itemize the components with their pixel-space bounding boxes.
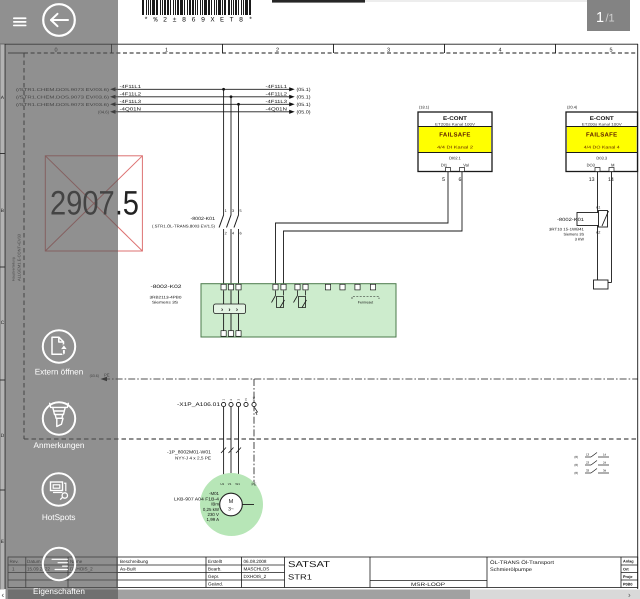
svg-text:As-Built: As-Built — [120, 567, 137, 572]
svg-text:N: N — [244, 398, 248, 400]
svg-text:14: 14 — [608, 177, 614, 183]
svg-text:›: › — [228, 307, 230, 314]
svg-text:Bearb.: Bearb. — [208, 567, 222, 572]
svg-text:IBm: IBm — [211, 502, 219, 507]
svg-text:PE: PE — [252, 483, 258, 487]
svg-text:06.08.2008: 06.08.2008 — [244, 559, 267, 564]
svg-text:FAILSAFE: FAILSAFE — [439, 132, 470, 139]
svg-text:5: 5 — [442, 177, 445, 183]
svg-text:›: › — [221, 307, 223, 314]
svg-text:2: 2 — [225, 232, 227, 236]
svg-text:(.STR1.ÖL-TRANS.8003 EV/1.5): (.STR1.ÖL-TRANS.8003 EV/1.5) — [152, 224, 216, 229]
svg-text:4: 4 — [498, 48, 501, 54]
svg-text:FAILSAFE: FAILSAFE — [586, 132, 617, 139]
svg-text:-X1P_A106.01: -X1P_A106.01 — [177, 402, 220, 408]
svg-text:*: * — [249, 16, 253, 24]
svg-text:8: 8 — [239, 16, 243, 24]
svg-text:(05.1): (05.1) — [297, 87, 312, 92]
svg-text:PE: PE — [252, 396, 256, 400]
svg-text:M: M — [229, 499, 234, 505]
svg-text:C: C — [1, 320, 5, 326]
svg-text:-4F11L2: -4F11L2 — [120, 92, 142, 97]
svg-text:Anmerkungen: Anmerkungen — [34, 441, 85, 450]
svg-text:3RT10 15-1WB41: 3RT10 15-1WB41 — [549, 228, 584, 232]
svg-text:Proje: Proje — [623, 575, 633, 579]
svg-text:P0B0: P0B0 — [623, 583, 633, 587]
svg-text:24: 24 — [603, 461, 607, 465]
svg-text:23: 23 — [586, 461, 590, 465]
svg-text:(8): (8) — [574, 455, 578, 459]
svg-text:E-CONT: E-CONT — [590, 116, 615, 122]
svg-text:±: ± — [173, 16, 177, 24]
svg-text:(05.1): (05.1) — [297, 102, 312, 107]
svg-text:NYY-J 4 x 2,5 PE: NYY-J 4 x 2,5 PE — [175, 456, 211, 461]
svg-text:6: 6 — [240, 232, 242, 236]
svg-text:*: * — [144, 16, 148, 24]
svg-text:9: 9 — [201, 16, 205, 24]
svg-text:D03.3: D03.3 — [596, 156, 607, 161]
svg-text:-4F11L2: -4F11L2 — [266, 92, 288, 97]
svg-text:-4F11L1: -4F11L1 — [266, 84, 288, 89]
svg-text:DXHOIS_2: DXHOIS_2 — [244, 574, 267, 579]
svg-text:D: D — [1, 433, 5, 439]
svg-text:-8002-K02: -8002-K02 — [151, 284, 182, 290]
svg-text:SATSAT: SATSAT — [288, 559, 330, 569]
svg-text:Ort: Ort — [623, 568, 629, 572]
svg-text:B: B — [1, 208, 4, 214]
svg-text:E-CONT: E-CONT — [443, 116, 468, 122]
svg-text:(8): (8) — [574, 463, 578, 467]
svg-text:/1: /1 — [606, 13, 615, 25]
svg-text:3 KW: 3 KW — [575, 238, 585, 242]
svg-text:A2: A2 — [596, 231, 600, 235]
svg-text:-8002-K01: -8002-K01 — [557, 217, 585, 222]
svg-text:3: 3 — [387, 48, 390, 54]
svg-text:DI02.1: DI02.1 — [449, 156, 462, 161]
svg-text:E: E — [220, 16, 224, 24]
svg-text:Geänd.: Geänd. — [208, 582, 223, 587]
svg-text:Gepr.: Gepr. — [208, 574, 219, 579]
svg-text:STR1: STR1 — [288, 573, 312, 582]
svg-text:DO3: DO3 — [587, 163, 596, 168]
svg-text:-4F11L3: -4F11L3 — [266, 99, 288, 104]
svg-text:1,99 A: 1,99 A — [207, 517, 220, 522]
svg-text:T: T — [230, 16, 234, 24]
svg-text:4/4 DO Kanal 4: 4/4 DO Kanal 4 — [584, 145, 621, 150]
svg-text:3~: 3~ — [228, 507, 234, 513]
svg-text:5: 5 — [609, 48, 612, 54]
svg-text:(05.1): (05.1) — [297, 95, 312, 100]
svg-text:-8002-K01: -8002-K01 — [191, 216, 216, 221]
svg-text:13: 13 — [586, 453, 590, 457]
svg-text:›: › — [236, 307, 238, 314]
svg-text:6: 6 — [192, 16, 196, 24]
svg-text:8: 8 — [182, 16, 186, 24]
svg-text:›: › — [628, 591, 631, 599]
svg-text:-4Q01N: -4Q01N — [266, 107, 288, 112]
svg-text:Val: Val — [463, 163, 469, 168]
svg-text:33: 33 — [586, 469, 590, 473]
svg-text:‹: ‹ — [2, 591, 5, 599]
svg-text:3: 3 — [232, 209, 234, 213]
svg-text:E: E — [1, 539, 4, 545]
svg-text:M: M — [611, 163, 614, 168]
svg-text:4/4 DI Kanal 2: 4/4 DI Kanal 2 — [437, 145, 474, 150]
svg-text:DI1: DI1 — [441, 163, 448, 168]
svg-text:6: 6 — [459, 177, 462, 183]
svg-text:-4F11L1: -4F11L1 — [120, 84, 142, 89]
svg-text:X: X — [211, 16, 215, 24]
svg-text:MASCHLOS: MASCHLOS — [244, 567, 270, 572]
svg-text:V1: V1 — [228, 482, 232, 486]
svg-text:(20.4): (20.4) — [567, 105, 578, 110]
svg-text:(18.1): (18.1) — [419, 105, 430, 110]
svg-text:2: 2 — [276, 48, 279, 54]
svg-text:ET200s Kanal 100V: ET200s Kanal 100V — [582, 123, 623, 127]
svg-text:-4Q01N: -4Q01N — [120, 107, 142, 112]
svg-text:3RB2113-4PB0: 3RB2113-4PB0 — [150, 296, 182, 300]
svg-text:1: 1 — [165, 48, 168, 54]
svg-text:-M01: -M01 — [209, 491, 220, 496]
svg-text:1: 1 — [225, 209, 227, 213]
svg-text:ET200s Kanal 100V: ET200s Kanal 100V — [435, 123, 476, 127]
svg-text:Schmierölpumpe: Schmierölpumpe — [490, 567, 532, 573]
svg-text:Siemens 3S: Siemens 3S — [564, 233, 585, 237]
svg-text:HotSpots: HotSpots — [42, 513, 76, 522]
svg-text:-4F11L3: -4F11L3 — [120, 99, 142, 104]
svg-text:13: 13 — [589, 177, 595, 183]
svg-text:W1: W1 — [235, 482, 240, 486]
svg-text:34: 34 — [603, 469, 607, 473]
svg-text:(8): (8) — [574, 471, 578, 475]
svg-text:Siemens 3S: Siemens 3S — [152, 301, 179, 305]
svg-text:U1: U1 — [220, 482, 224, 486]
svg-text:A1: A1 — [596, 206, 600, 210]
svg-text:MSR-LOOP: MSR-LOOP — [411, 582, 446, 588]
svg-text:Erstellt: Erstellt — [208, 559, 223, 564]
svg-text:4: 4 — [232, 232, 234, 236]
svg-text:14: 14 — [603, 453, 607, 457]
svg-text:(05.0): (05.0) — [297, 110, 312, 115]
svg-text:Beschreibung: Beschreibung — [120, 559, 149, 564]
svg-text:ÖL-TRANS Öl-Transport: ÖL-TRANS Öl-Transport — [490, 559, 555, 566]
svg-text:Fernreset: Fernreset — [358, 301, 373, 305]
svg-text:2: 2 — [163, 16, 167, 24]
svg-text:Anlag: Anlag — [623, 560, 634, 564]
svg-text:-1P_8002M01-W01: -1P_8002M01-W01 — [167, 450, 211, 455]
svg-text:Eigenschaften: Eigenschaften — [33, 587, 85, 596]
svg-text:Extern öffnen: Extern öffnen — [35, 368, 84, 377]
svg-text:1: 1 — [596, 10, 604, 26]
svg-text:5: 5 — [240, 209, 242, 213]
